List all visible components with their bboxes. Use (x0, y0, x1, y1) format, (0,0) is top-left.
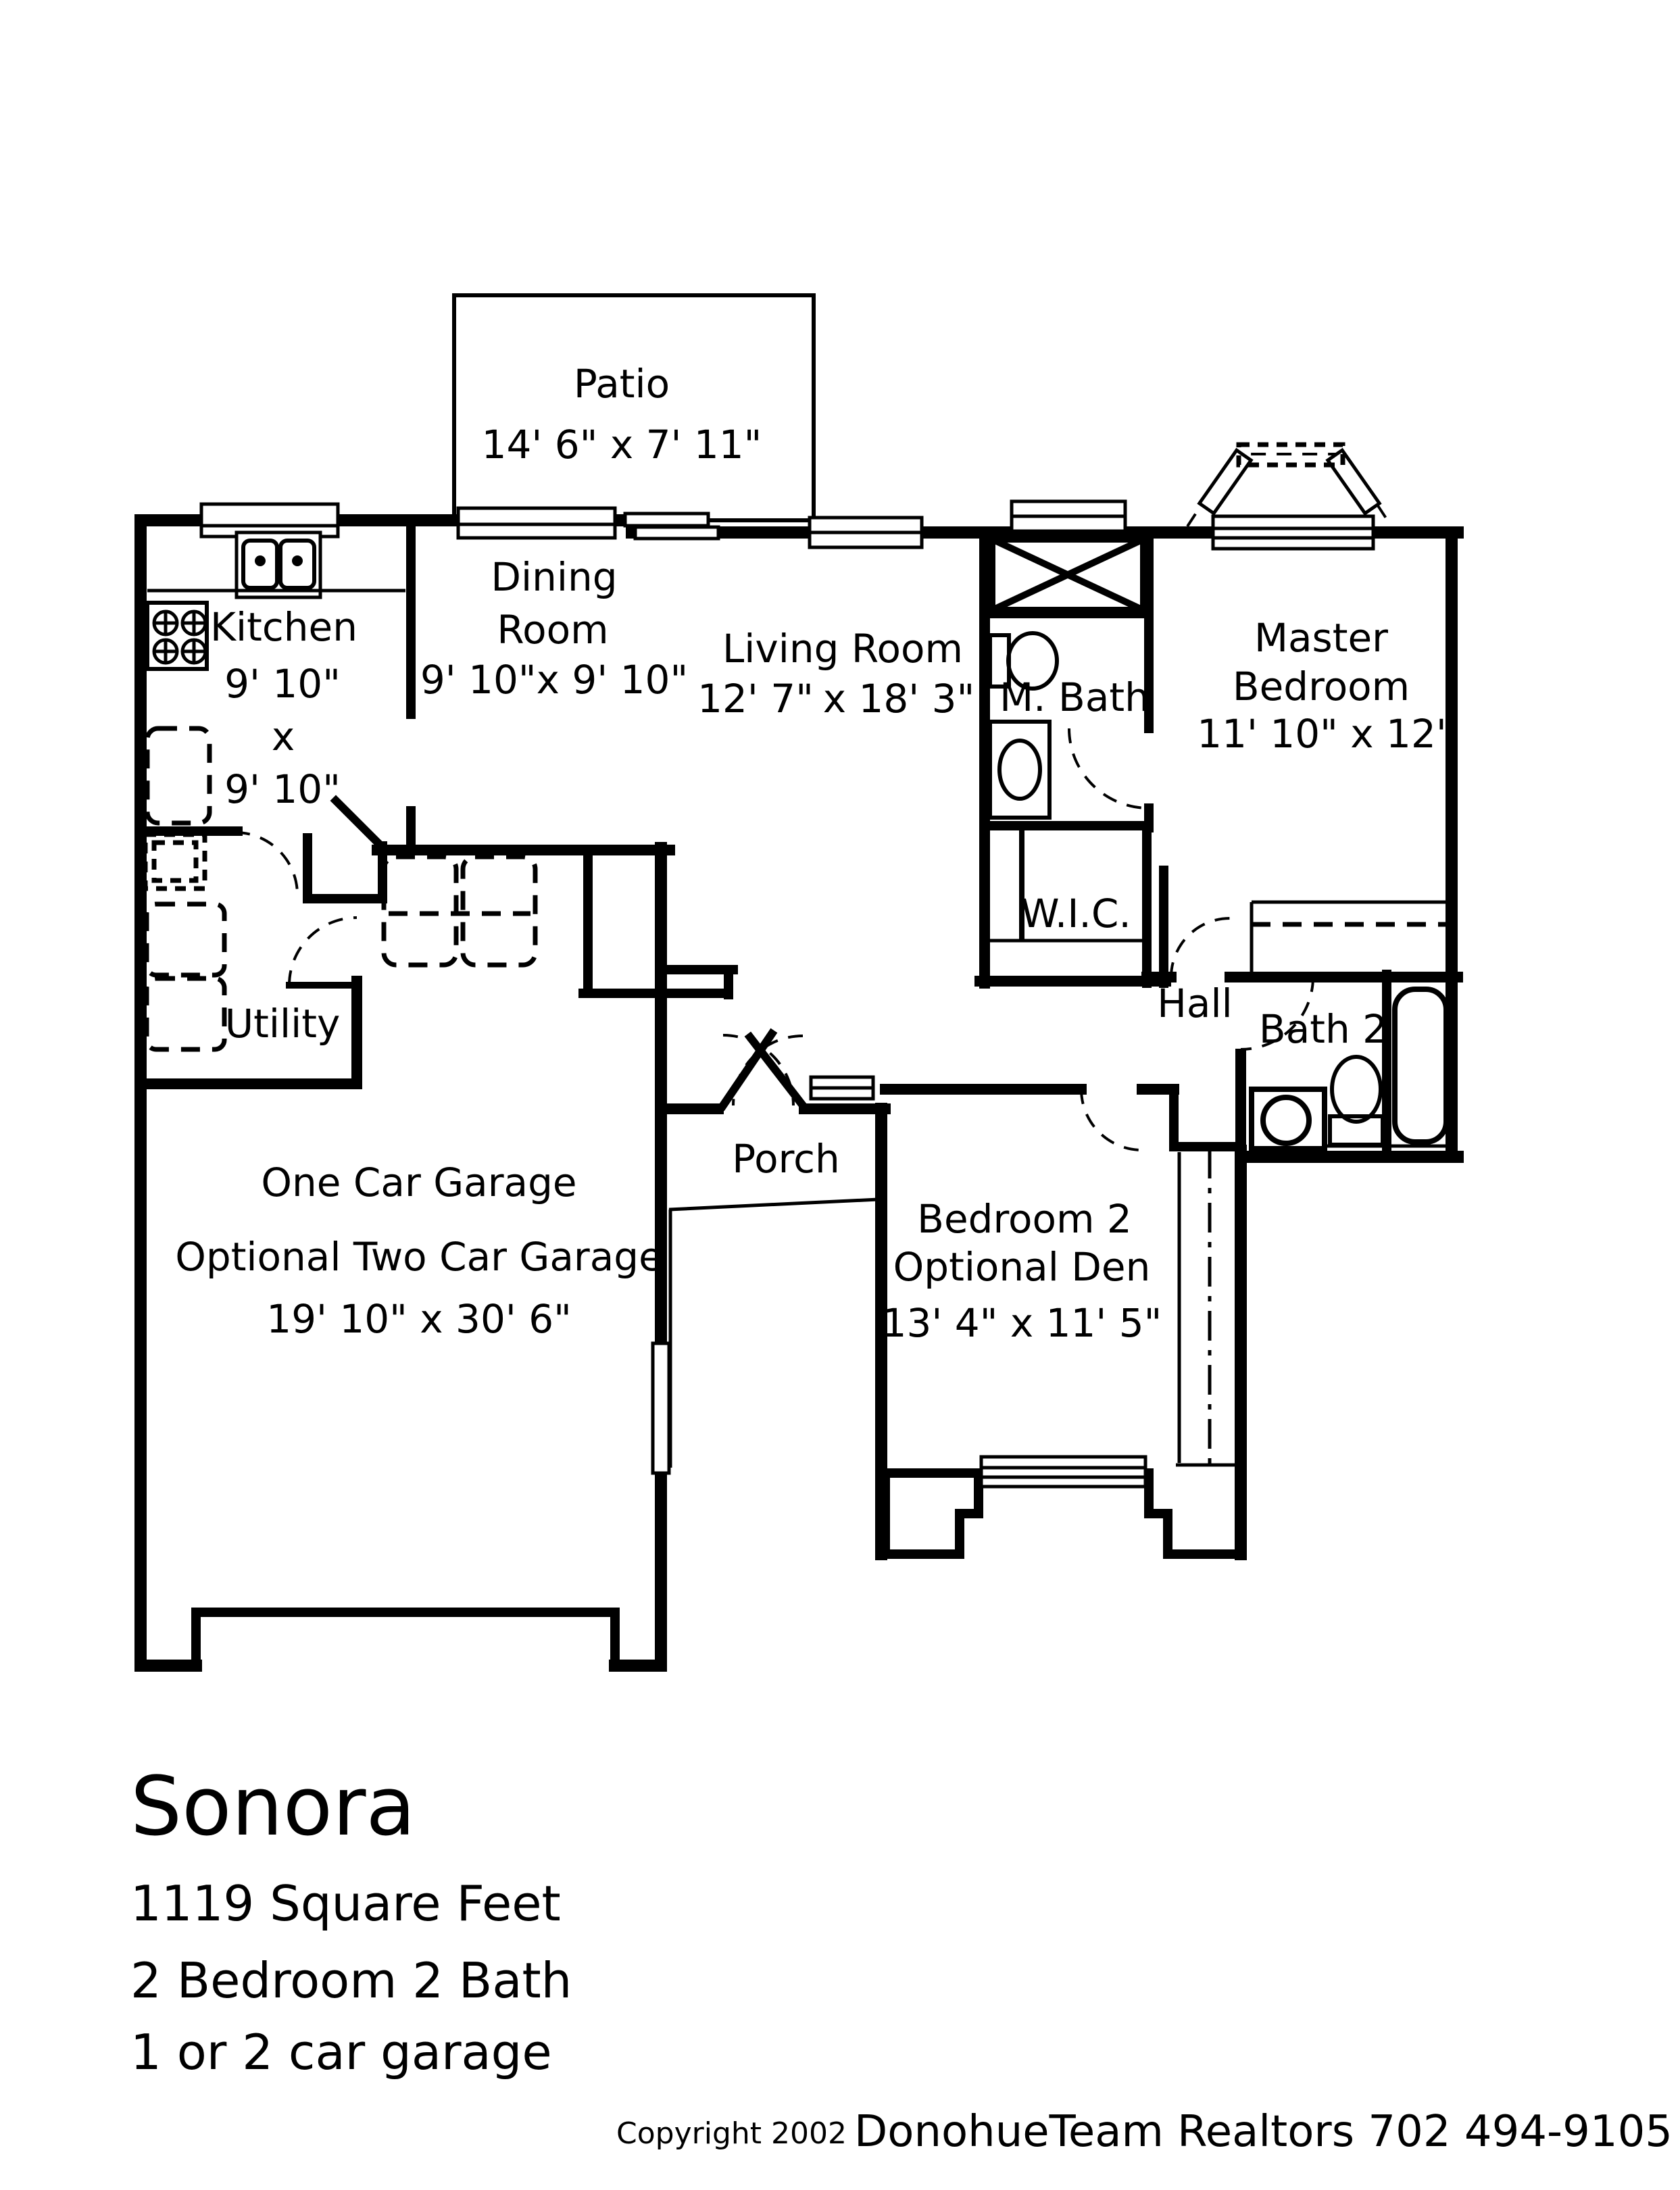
plan-garage-note: 1 or 2 car garage (130, 2024, 552, 2081)
master-label-2: Bedroom (1233, 664, 1410, 710)
master-bath-label: M. Bath (999, 674, 1150, 720)
bedroom2-label-1: Bedroom 2 (917, 1196, 1132, 1242)
living-dims-a: 12' 7" (697, 676, 814, 722)
master-dims: 11' 10" x 12' (1197, 711, 1447, 757)
floorplan-page: Patio 14' 6" x 7' 11" Kitchen 9' 10" x 9… (0, 0, 1680, 2190)
patio-sliding-door (625, 514, 718, 539)
refrigerator (147, 728, 209, 823)
master-closet (1252, 902, 1446, 974)
master-label-1: Master (1254, 615, 1388, 661)
stove-icon (147, 603, 207, 669)
wic-label: W.I.C. (1020, 891, 1131, 937)
utility-door (289, 918, 357, 985)
bath2-label: Bath 2 (1259, 1006, 1387, 1052)
kitchen-sink (237, 532, 320, 597)
patio-outline (454, 295, 814, 520)
plan-title: Sonora (130, 1760, 416, 1854)
bath2-sink (1252, 1089, 1325, 1149)
garage-dims: 19' 10" x 30' 6" (266, 1296, 572, 1342)
bedroom2-window (981, 1457, 1145, 1487)
living-window (810, 518, 922, 547)
kitchen-dim2: 9' 10" (224, 766, 341, 812)
bedroom2-label-2: Optional Den (893, 1244, 1151, 1290)
bath2-tub (1389, 989, 1452, 1155)
copyright-prefix: Copyright 2002 (616, 2116, 847, 2151)
plan-bed-bath: 2 Bedroom 2 Bath (130, 1952, 572, 2009)
dining-label-2: Room (497, 607, 608, 653)
linen-closet-x (985, 539, 1149, 614)
bath2-toilet (1325, 1057, 1387, 1155)
bedroom2-closet (1176, 1149, 1238, 1465)
patio-dims: 14' 6" x 7' 11" (482, 422, 762, 468)
entry-walls (377, 850, 733, 995)
copyright-company: DonohueTeam Realtors 702 494-9105 (854, 2107, 1673, 2157)
master-bedroom-window (1213, 516, 1373, 549)
living-label: Living Room (722, 626, 963, 672)
patio-label: Patio (574, 361, 670, 407)
garage-side-door (653, 1343, 669, 1473)
master-south-wall (1147, 918, 1458, 977)
dining-label-1: Dining (491, 554, 617, 600)
bedroom2-dims: 13' 4" x 11' 5" (882, 1300, 1162, 1346)
plan-sqft: 1119 Square Feet (130, 1875, 561, 1932)
front-window (811, 1077, 873, 1099)
bay-window (1187, 445, 1391, 526)
hall-label: Hall (1157, 980, 1232, 1026)
kitchen-times: x (272, 714, 295, 760)
kitchen-label: Kitchen (210, 604, 357, 650)
porch-label: Porch (732, 1136, 840, 1182)
master-bath-window (1012, 501, 1125, 531)
dining-window (458, 508, 615, 538)
kitchen-dim1: 9' 10" (224, 661, 341, 707)
garage-label-2: Optional Two Car Garage (175, 1234, 663, 1280)
pantry-corner (235, 801, 382, 899)
utility-label: Utility (225, 1001, 341, 1047)
hall-south-wall (885, 1089, 1241, 1150)
washer-dryer (147, 904, 224, 1049)
living-dims-b: x 18' 3" (823, 676, 975, 722)
entry-cabinets (384, 857, 535, 965)
water-heater (145, 835, 205, 889)
mbath-sink (990, 722, 1049, 818)
floorplan-drawing: Patio 14' 6" x 7' 11" Kitchen 9' 10" x 9… (0, 0, 1680, 2190)
dining-dims: 9' 10"x 9' 10" (420, 657, 688, 703)
garage-label-1: One Car Garage (261, 1160, 576, 1205)
mbath-door-arc (1069, 728, 1149, 808)
